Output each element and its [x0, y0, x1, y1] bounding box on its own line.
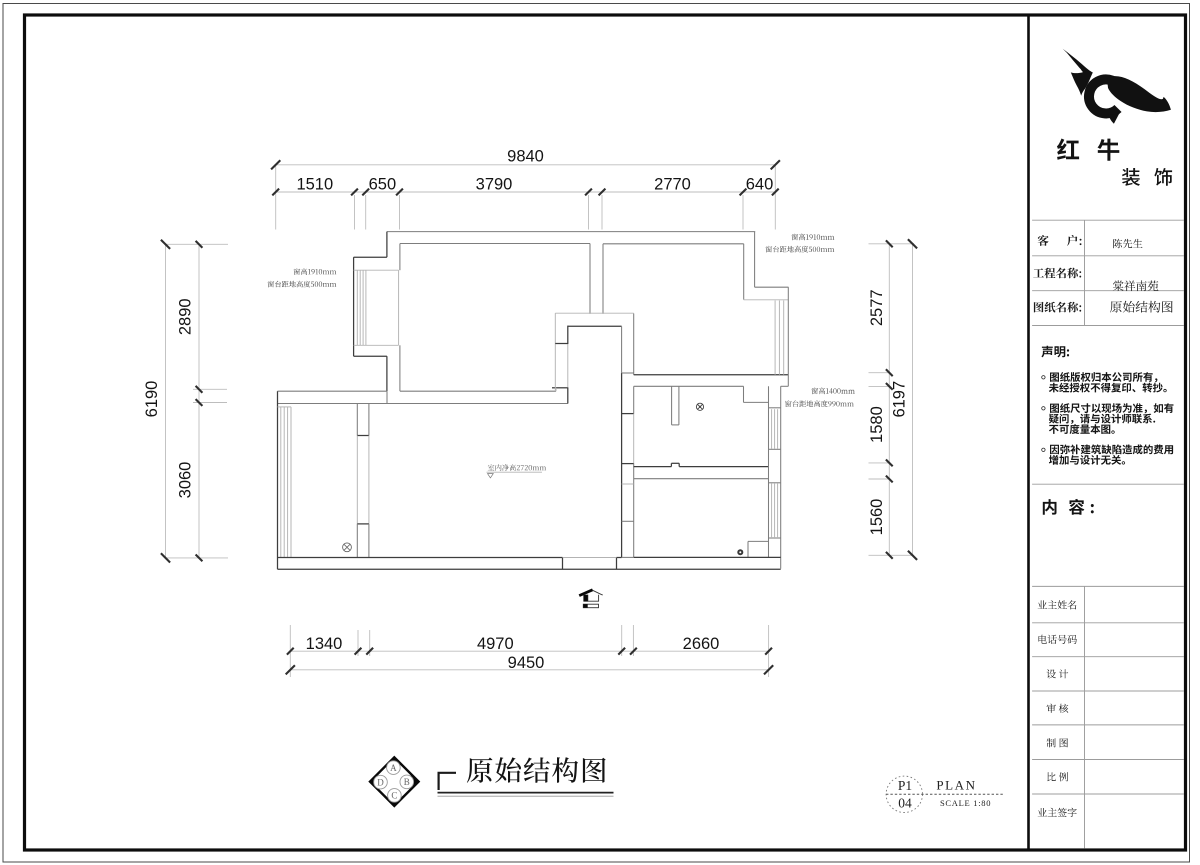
svg-text:B: B [404, 777, 410, 787]
svg-text:A: A [390, 763, 397, 773]
svg-text:C: C [391, 791, 397, 801]
svg-text:2660: 2660 [683, 635, 720, 653]
svg-text:3060: 3060 [177, 462, 195, 499]
svg-text:SCALE 1:80: SCALE 1:80 [940, 798, 991, 808]
svg-text:9840: 9840 [507, 148, 544, 166]
svg-text:1560: 1560 [868, 499, 886, 536]
svg-text:6197: 6197 [891, 381, 909, 418]
svg-text:1580: 1580 [868, 406, 886, 443]
svg-text:640: 640 [746, 175, 774, 193]
svg-text:650: 650 [369, 175, 397, 193]
svg-text:D: D [377, 777, 384, 787]
svg-text:3790: 3790 [476, 175, 513, 193]
svg-text:2577: 2577 [868, 289, 886, 326]
svg-text:P1: P1 [898, 778, 912, 793]
svg-text:2890: 2890 [177, 298, 195, 335]
svg-text:PLAN: PLAN [936, 777, 976, 792]
svg-text:4970: 4970 [477, 635, 514, 653]
svg-text:1510: 1510 [296, 175, 333, 193]
svg-text:04: 04 [898, 796, 912, 811]
svg-text:2770: 2770 [654, 175, 691, 193]
svg-text:9450: 9450 [508, 654, 545, 672]
svg-text:6190: 6190 [143, 381, 161, 418]
svg-text:1340: 1340 [306, 635, 343, 653]
